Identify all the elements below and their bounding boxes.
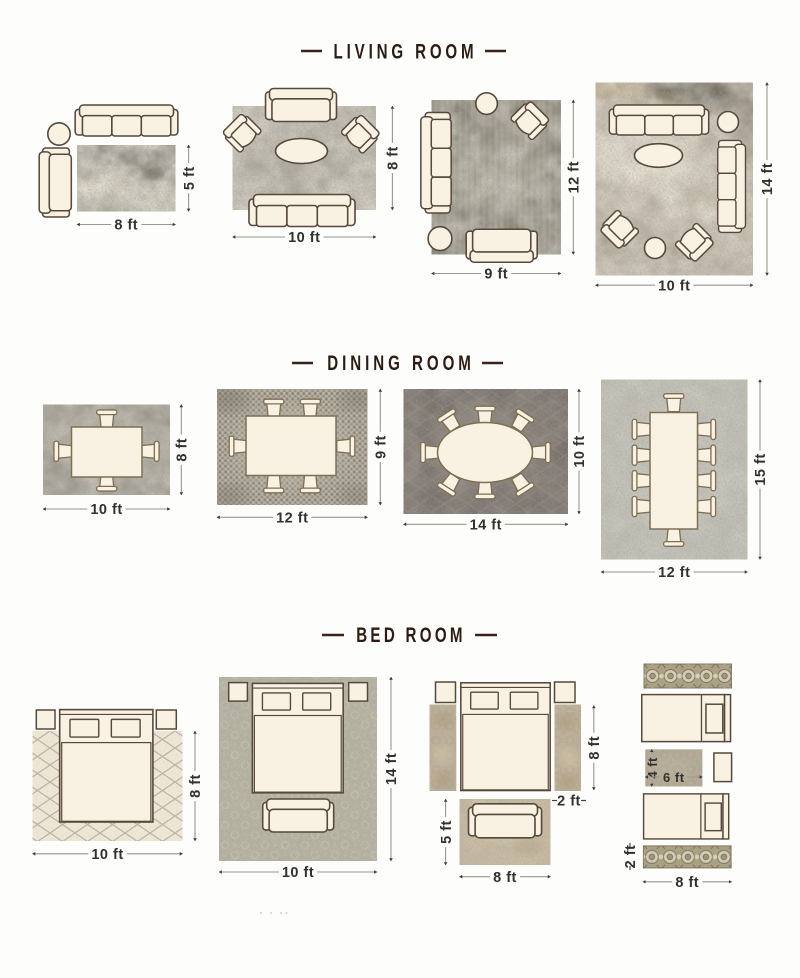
svg-text:8 ft: 8 ft: [114, 218, 138, 234]
svg-text:DINING ROOM: DINING ROOM: [327, 350, 475, 374]
svg-text:10 ft: 10 ft: [572, 435, 588, 467]
svg-text:10 ft: 10 ft: [90, 502, 122, 518]
svg-text:8 ft: 8 ft: [188, 774, 204, 798]
svg-text:9 ft: 9 ft: [484, 267, 508, 283]
svg-text:8 ft: 8 ft: [675, 875, 699, 891]
svg-text:14 ft: 14 ft: [384, 753, 400, 785]
svg-text:15 ft: 15 ft: [753, 453, 769, 485]
svg-text:2 ft: 2 ft: [623, 845, 639, 869]
svg-text:14 ft: 14 ft: [760, 163, 776, 195]
svg-text:BED ROOM: BED ROOM: [356, 622, 466, 646]
svg-text:12 ft: 12 ft: [276, 511, 308, 527]
svg-text:2 ft: 2 ft: [557, 794, 581, 810]
svg-text:12 ft: 12 ft: [567, 161, 583, 193]
svg-text:5 ft: 5 ft: [439, 820, 455, 844]
svg-text:10 ft: 10 ft: [91, 847, 123, 863]
svg-text:LIVING ROOM: LIVING ROOM: [334, 39, 478, 63]
svg-text:4 ft: 4 ft: [645, 757, 660, 779]
svg-text:8 ft: 8 ft: [587, 736, 603, 760]
svg-text:8 ft: 8 ft: [386, 146, 402, 170]
svg-text:8 ft: 8 ft: [175, 438, 191, 462]
svg-text:5 ft: 5 ft: [182, 166, 198, 190]
svg-text:10 ft: 10 ft: [658, 278, 690, 294]
svg-text:10 ft: 10 ft: [282, 865, 314, 881]
svg-text:14 ft: 14 ft: [470, 518, 502, 534]
svg-text:9 ft: 9 ft: [374, 435, 390, 459]
svg-text:6 ft: 6 ft: [663, 770, 685, 785]
svg-text:10 ft: 10 ft: [288, 230, 320, 246]
svg-text:12 ft: 12 ft: [658, 565, 690, 581]
svg-text:8 ft: 8 ft: [493, 870, 517, 886]
